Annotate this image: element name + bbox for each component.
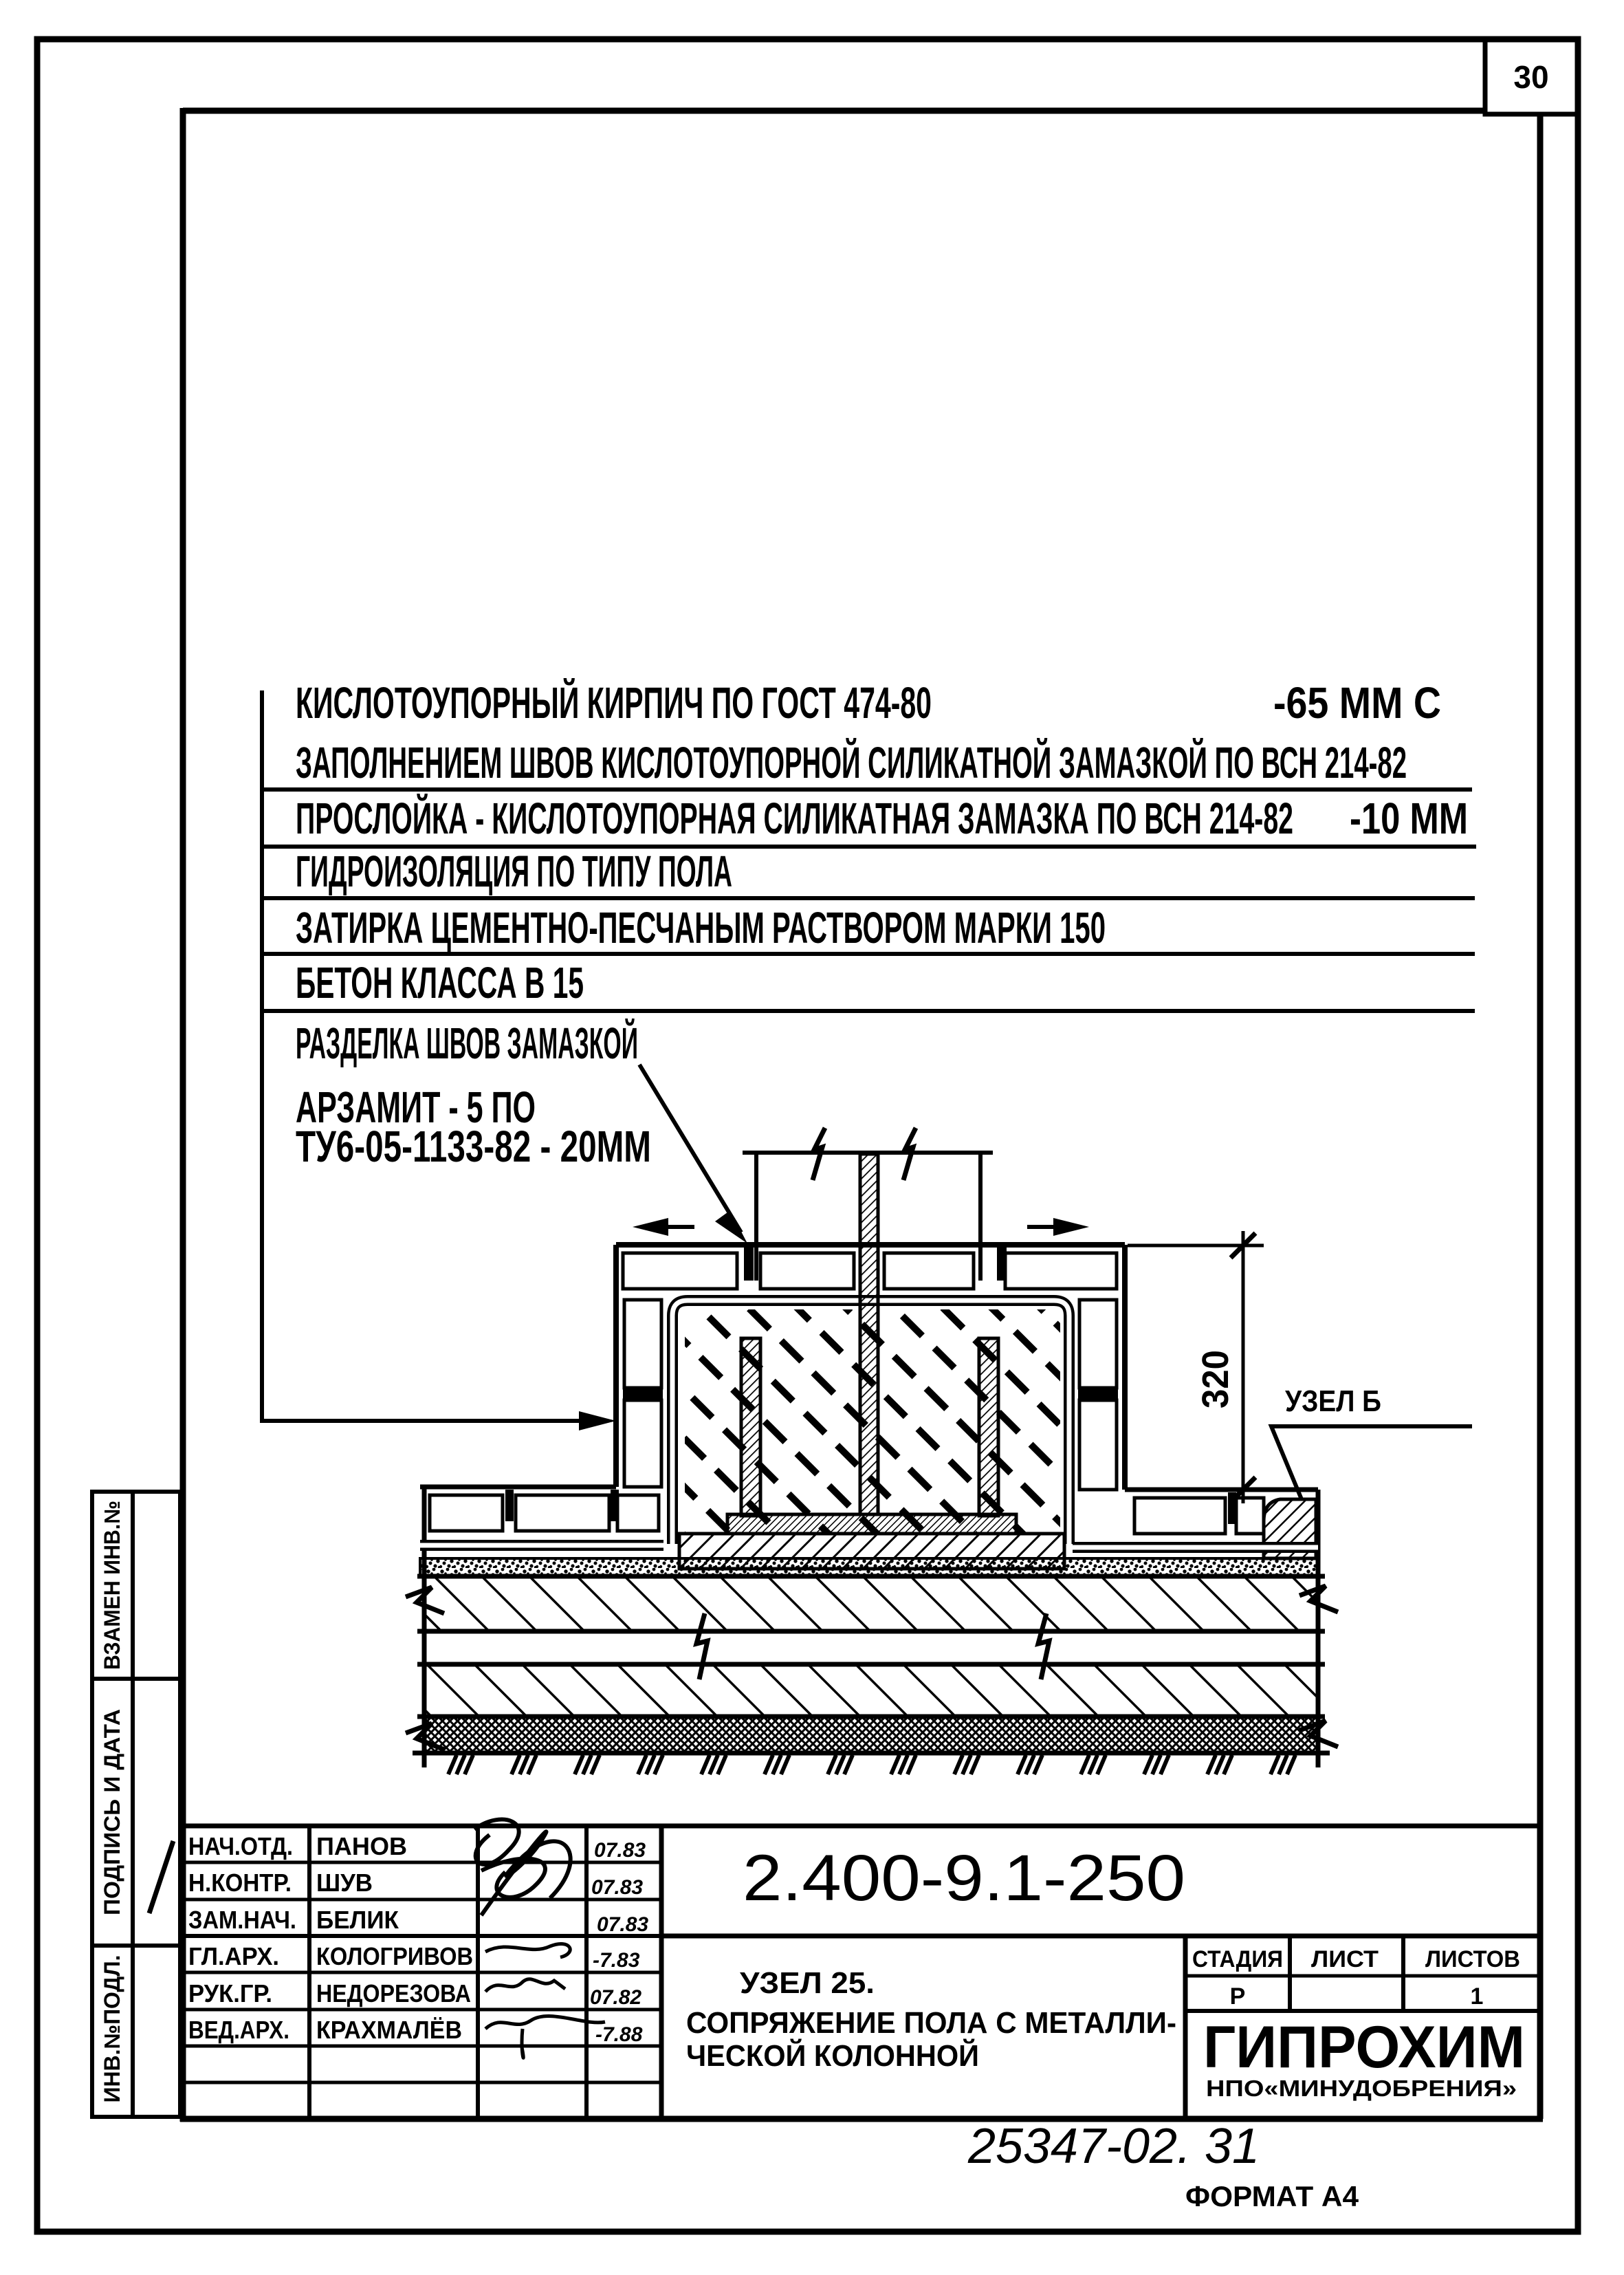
svg-text:БЕТОН КЛАССА В 15: БЕТОН КЛАССА В 15 [296,958,584,1008]
svg-text:ПРОСЛОЙКА - КИСЛОТОУПОРНАЯ СИЛ: ПРОСЛОЙКА - КИСЛОТОУПОРНАЯ СИЛИКАТНАЯ ЗА… [296,793,1293,843]
svg-text:ИНВ.№ПОДЛ.: ИНВ.№ПОДЛ. [100,1955,124,2103]
svg-text:-7.83: -7.83 [593,1949,640,1972]
svg-text:КРАХМАЛЁВ: КРАХМАЛЁВ [316,2016,462,2044]
svg-text:1: 1 [1471,1983,1484,2010]
svg-text:КИСЛОТОУПОРНЫЙ КИРПИЧ ПО ГОСТ: КИСЛОТОУПОРНЫЙ КИРПИЧ ПО ГОСТ 474-80 [296,677,932,728]
svg-text:ШУВ: ШУВ [316,1869,373,1897]
svg-text:ПОДПИСЬ И ДАТА: ПОДПИСЬ И ДАТА [100,1709,124,1915]
svg-text:ВЗАМЕН ИНВ.№: ВЗАМЕН ИНВ.№ [100,1501,124,1670]
svg-text:30: 30 [1513,59,1548,95]
svg-text:НЕДОРЕЗОВА: НЕДОРЕЗОВА [316,1979,471,2007]
svg-text:07.83: 07.83 [594,1839,646,1862]
svg-text:СТАДИЯ: СТАДИЯ [1192,1946,1283,1972]
svg-text:2.400-9.1-250: 2.400-9.1-250 [743,1842,1185,1915]
svg-text:УЗЕЛ 25.: УЗЕЛ 25. [740,1966,875,2000]
svg-text:07.83: 07.83 [597,1913,648,1936]
svg-text:РАЗДЕЛКА ШВОВ ЗАМАЗКОЙ: РАЗДЕЛКА ШВОВ ЗАМАЗКОЙ [296,1018,638,1068]
svg-text:ЛИСТОВ: ЛИСТОВ [1425,1946,1520,1972]
svg-text:РУК.ГР.: РУК.ГР. [188,1979,272,2007]
svg-text:ФОРМАТ А4: ФОРМАТ А4 [1185,2180,1359,2212]
svg-text:Р: Р [1230,1983,1246,2010]
svg-text:07.83: 07.83 [591,1876,643,1899]
svg-text:КОЛОГРИВОВ: КОЛОГРИВОВ [316,1942,473,1970]
svg-text:НПО«МИНУДОБРЕНИЯ»: НПО«МИНУДОБРЕНИЯ» [1206,2076,1517,2101]
svg-text:ГИДРОИЗОЛЯЦИЯ ПО ТИПУ ПОЛА: ГИДРОИЗОЛЯЦИЯ ПО ТИПУ ПОЛА [296,847,732,896]
svg-text:ТУ6-05-1133-82 - 20ММ: ТУ6-05-1133-82 - 20ММ [296,1122,651,1171]
svg-text:ГЛ.АРХ.: ГЛ.АРХ. [188,1942,279,1970]
svg-text:БЕЛИК: БЕЛИК [316,1906,399,1934]
svg-text:ЗАТИРКА ЦЕМЕНТНО-ПЕСЧАНЫМ РАС: ЗАТИРКА ЦЕМЕНТНО-ПЕСЧАНЫМ РАСТВОРОМ МАРК… [296,903,1106,953]
svg-text:-65 ММ С: -65 ММ С [1273,678,1441,728]
svg-text:ГИПРОХИМ: ГИПРОХИМ [1203,2014,1525,2080]
svg-text:ПАНОВ: ПАНОВ [316,1832,407,1860]
svg-text:25347-02. 31: 25347-02. 31 [967,2119,1260,2174]
svg-text:НАЧ.ОТД.: НАЧ.ОТД. [188,1832,293,1860]
svg-text:-7.88: -7.88 [595,2023,643,2046]
svg-text:ЗАПОЛНЕНИЕМ ШВОВ КИСЛОТОУПОРН: ЗАПОЛНЕНИЕМ ШВОВ КИСЛОТОУПОРНОЙ СИЛИКАТН… [296,737,1407,787]
svg-text:ВЕД.АРХ.: ВЕД.АРХ. [188,2016,289,2044]
svg-text:ЛИСТ: ЛИСТ [1311,1946,1379,1972]
svg-text:Н.КОНТР.: Н.КОНТР. [188,1869,292,1897]
svg-text:СОПРЯЖЕНИЕ ПОЛА С МЕТАЛЛИ-: СОПРЯЖЕНИЕ ПОЛА С МЕТАЛЛИ- [686,2006,1176,2040]
svg-text:ЧЕСКОЙ КОЛОННОЙ: ЧЕСКОЙ КОЛОННОЙ [686,2038,979,2073]
svg-text:-10 ММ: -10 ММ [1350,794,1468,843]
svg-text:УЗЕЛ Б: УЗЕЛ Б [1285,1384,1381,1418]
svg-text:07.82: 07.82 [590,1986,641,2009]
svg-text:320: 320 [1195,1350,1236,1408]
svg-text:ЗАМ.НАЧ.: ЗАМ.НАЧ. [188,1906,296,1934]
